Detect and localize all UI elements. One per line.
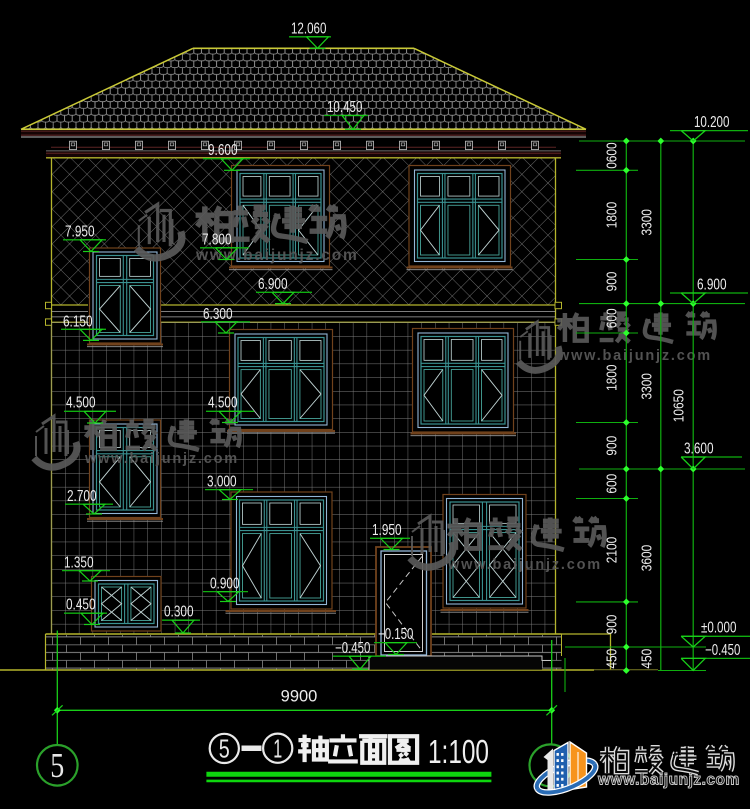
- svg-text:6.900: 6.900: [258, 276, 288, 293]
- svg-text:−0.450: −0.450: [705, 642, 741, 659]
- svg-text:1.350: 1.350: [64, 555, 94, 572]
- svg-text:3.600: 3.600: [684, 441, 714, 458]
- svg-text:450: 450: [604, 649, 621, 669]
- svg-text:3600: 3600: [639, 545, 656, 571]
- svg-text:7.950: 7.950: [65, 224, 95, 241]
- svg-text:3.000: 3.000: [207, 474, 237, 491]
- svg-text:www.baijunjz.com: www.baijunjz.com: [447, 557, 602, 573]
- svg-text:1: 1: [273, 734, 282, 764]
- svg-text:1800: 1800: [604, 365, 621, 391]
- svg-text:2.700: 2.700: [67, 488, 97, 505]
- svg-text:4.500: 4.500: [208, 395, 238, 412]
- svg-text:www.baijunjz.com: www.baijunjz.com: [557, 348, 712, 364]
- svg-text:0.300: 0.300: [164, 604, 194, 621]
- svg-text:900: 900: [604, 615, 621, 635]
- svg-text:0600: 0600: [604, 142, 621, 168]
- svg-text:9900: 9900: [281, 688, 318, 706]
- svg-text:−0.450: −0.450: [335, 640, 371, 657]
- svg-text:4.500: 4.500: [66, 395, 96, 412]
- svg-text:www.baijunjz.com: www.baijunjz.com: [84, 451, 239, 467]
- svg-text:3300: 3300: [639, 209, 656, 235]
- svg-text:2100: 2100: [604, 537, 621, 563]
- svg-text:12.060: 12.060: [291, 21, 327, 38]
- svg-text:600: 600: [604, 474, 621, 494]
- svg-text:9.600: 9.600: [208, 142, 238, 159]
- svg-text:0.450: 0.450: [66, 597, 96, 614]
- svg-text:±0.000: ±0.000: [701, 620, 737, 637]
- svg-text:6.150: 6.150: [63, 314, 93, 331]
- svg-text:1800: 1800: [604, 202, 621, 228]
- svg-text:900: 900: [604, 272, 621, 292]
- svg-text:1:100: 1:100: [428, 733, 489, 770]
- svg-text:10650: 10650: [671, 389, 688, 422]
- svg-text:5: 5: [219, 734, 230, 764]
- svg-text:6.900: 6.900: [697, 277, 727, 294]
- svg-text:450: 450: [639, 649, 656, 669]
- svg-text:10.200: 10.200: [694, 114, 730, 131]
- svg-text:www.baijunjz.com: www.baijunjz.com: [195, 247, 359, 264]
- svg-text:1.950: 1.950: [372, 522, 402, 539]
- svg-text:6.300: 6.300: [203, 306, 233, 323]
- svg-text:−0.150: −0.150: [378, 626, 414, 643]
- svg-text:900: 900: [604, 436, 621, 456]
- svg-text:7.800: 7.800: [202, 232, 232, 249]
- svg-text:600: 600: [604, 308, 621, 328]
- svg-text:3300: 3300: [639, 373, 656, 399]
- svg-text:www.baijunjz.com: www.baijunjz.com: [597, 772, 740, 789]
- svg-text:10.450: 10.450: [327, 99, 363, 116]
- svg-text:5: 5: [50, 746, 64, 785]
- svg-text:0.900: 0.900: [210, 576, 240, 593]
